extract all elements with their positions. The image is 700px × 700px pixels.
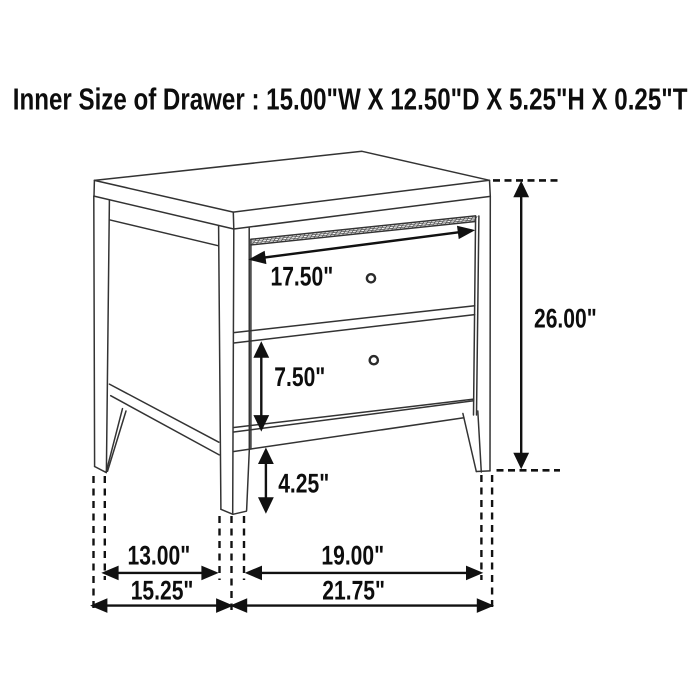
svg-text:17.50": 17.50": [271, 262, 334, 292]
svg-text:26.00": 26.00": [534, 303, 597, 333]
svg-text:15.25": 15.25": [131, 575, 194, 605]
svg-text:21.75": 21.75": [322, 575, 385, 605]
svg-text:19.00": 19.00": [321, 541, 384, 571]
svg-text:13.00": 13.00": [128, 541, 191, 571]
svg-text:7.50": 7.50": [274, 362, 325, 392]
svg-text:4.25": 4.25": [278, 468, 329, 498]
svg-text:Inner Size of Drawer : 15.00"W: Inner Size of Drawer : 15.00"W X 12.50"D…: [13, 83, 688, 117]
